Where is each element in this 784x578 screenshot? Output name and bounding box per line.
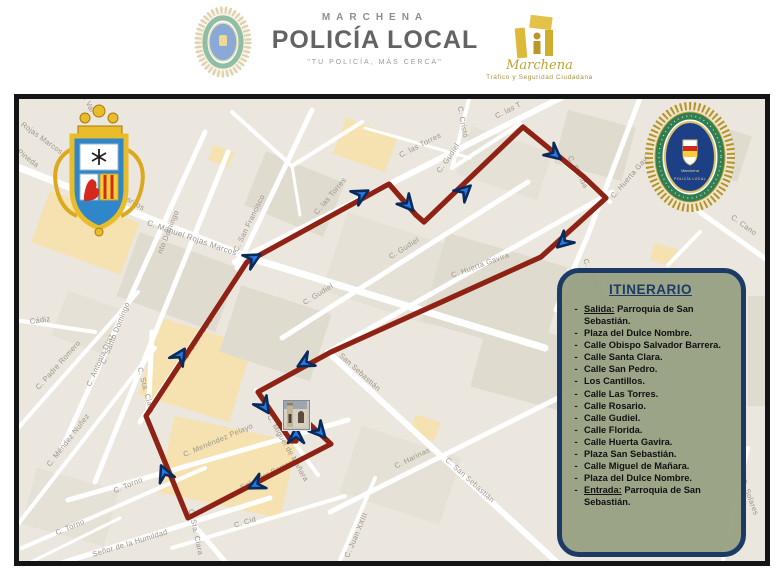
itinerary-title: ITINERARIO: [568, 282, 733, 297]
itinerary-item: -Plaza del Dulce Nombre.: [568, 327, 733, 339]
right-logo-script: Marchena: [472, 58, 607, 73]
itinerary-item: -Los Cantillos.: [568, 375, 733, 387]
itinerary-item: -Plaza San Sebastián.: [568, 448, 733, 460]
itinerary-item: -Calle Las Torres.: [568, 388, 733, 400]
badge-bottom-label: POLICÍA LOCAL: [674, 177, 706, 181]
church-photo-icon: [283, 400, 310, 430]
itinerary-item: -Calle Santa Clara.: [568, 351, 733, 363]
marchena-coat-of-arms-icon: [55, 105, 143, 236]
route-arrows: [154, 143, 575, 496]
page: MARCHENA POLICÍA LOCAL "TU POLICÍA, MÁS …: [0, 0, 784, 578]
itinerary-panel: ITINERARIO -Salida: Parroquia de San Seb…: [557, 268, 746, 557]
brand-title: POLICÍA LOCAL: [258, 26, 492, 55]
route-line: [146, 127, 606, 518]
itinerary-item: -Calle Florida.: [568, 424, 733, 436]
header: MARCHENA POLICÍA LOCAL "TU POLICÍA, MÁS …: [0, 0, 784, 92]
badge-city-label: Marchena: [681, 168, 700, 173]
itinerary-list: -Salida: Parroquia de San Sebastián.-Pla…: [568, 303, 733, 508]
route-map: Rojas MarcosC. PinedaC. Valas MarcosC. M…: [14, 94, 770, 566]
right-logo-block: Marchena Tráfico y Seguridad Ciudadana: [472, 8, 607, 81]
itinerary-item: -Plaza del Dulce Nombre.: [568, 472, 733, 484]
itinerary-item: -Calle Huerta Gavira.: [568, 436, 733, 448]
itinerary-item: -Salida: Parroquia de San Sebastián.: [568, 303, 733, 327]
brand-block: MARCHENA POLICÍA LOCAL "TU POLICÍA, MÁS …: [258, 12, 492, 66]
itinerary-item: -Calle Obispo Salvador Barrera.: [568, 339, 733, 351]
right-logo-subtitle: Tráfico y Seguridad Ciudadana: [472, 74, 607, 81]
brand-city-name: MARCHENA: [258, 12, 492, 23]
brand-tagline: "TU POLICÍA, MÁS CERCA": [258, 59, 492, 66]
itinerary-item: -Entrada: Parroquia de San Sebastián.: [568, 484, 733, 508]
itinerary-item: -Calle Rosario.: [568, 400, 733, 412]
police-badge-icon: Marchena POLICÍA LOCAL: [646, 103, 734, 211]
itinerary-item: -Calle Gudiel.: [568, 412, 733, 424]
police-badge-small-icon: [196, 8, 250, 76]
itinerary-item: -Calle Miguel de Mañara.: [568, 460, 733, 472]
itinerary-item: -Calle San Pedro.: [568, 363, 733, 375]
